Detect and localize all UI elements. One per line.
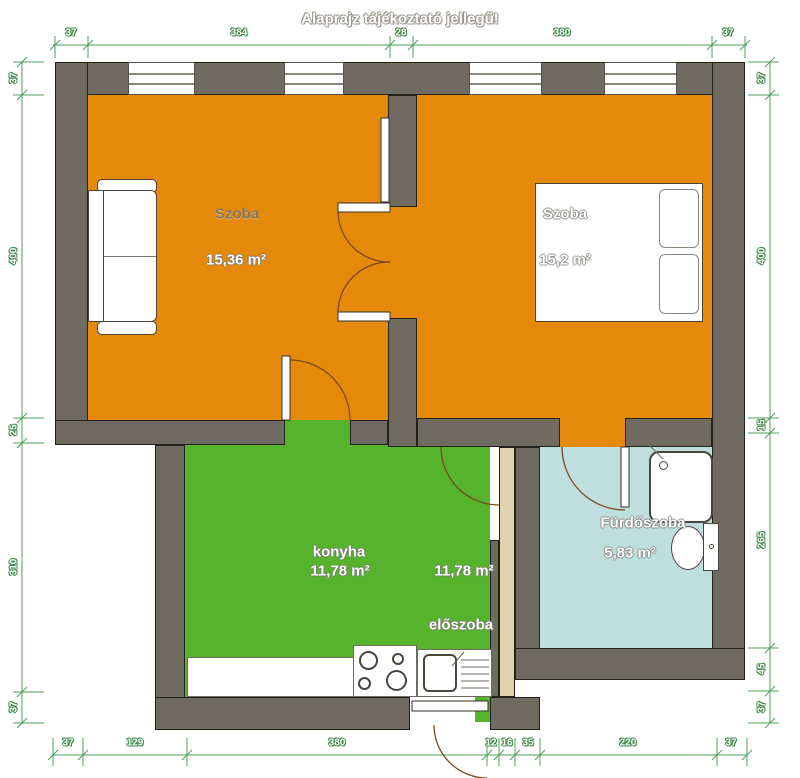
dim-left-0: 37 [9, 72, 20, 83]
floorplan-canvas: Alaprajz tájékoztató jellegű! [0, 0, 800, 778]
dim-bottom-1: 129 [127, 738, 144, 749]
dim-left-3: 310 [9, 559, 20, 576]
dim-bottom-6: 220 [620, 738, 637, 749]
bed-pillow-1 [659, 189, 699, 248]
szoba1-area: 15,36 m² [206, 252, 266, 269]
wall-under-szoba1-right [350, 420, 388, 445]
dim-right-0: 37 [757, 72, 768, 83]
stove-burner-4 [386, 670, 407, 691]
dim-right-2: 15 [757, 419, 768, 430]
wall-kitchen-left [155, 445, 185, 730]
window-4 [604, 62, 677, 95]
sink-basin [423, 654, 457, 692]
szoba-konyha-door-opening [285, 420, 350, 445]
wall-middle-upper [388, 95, 417, 207]
stove-burner-1 [359, 651, 378, 670]
eloszoba-name: előszoba [429, 617, 493, 634]
shower-cabin [649, 451, 713, 523]
szoba1-name: Szoba [215, 206, 259, 223]
kitchen-counter [187, 657, 354, 697]
dim-top-0: 37 [65, 28, 76, 39]
furdoszoba-name: Fürdőszoba [601, 515, 686, 532]
dim-bottom-7: 37 [725, 738, 736, 749]
eloszoba-area: 11,78 m² [434, 563, 493, 580]
dim-top-4: 37 [722, 28, 733, 39]
wall-left [55, 62, 88, 445]
dim-top-1: 384 [231, 28, 248, 39]
dim-left-1: 400 [9, 248, 20, 265]
dim-right-4: 45 [757, 663, 768, 674]
stove-burner-3 [358, 677, 371, 690]
toilet-flush-button [709, 544, 714, 549]
wall-under-szoba2-left [417, 418, 560, 447]
wall-bathroom-left [515, 447, 540, 680]
window-2 [284, 62, 344, 95]
dim-right-5: 37 [757, 701, 768, 712]
sofa-armrest-bottom [97, 321, 157, 335]
dim-bottom-4: 16 [501, 738, 512, 749]
dim-right-1: 400 [757, 248, 768, 265]
dim-bottom-2: 380 [329, 738, 346, 749]
wall-bottom-center [490, 697, 540, 730]
sofa-backrest [88, 190, 104, 322]
bed-pillow-2 [659, 254, 699, 314]
dim-right-3: 265 [757, 532, 768, 549]
dim-top-2: 28 [395, 28, 406, 39]
konyha-name: konyha [313, 544, 366, 561]
window-3 [469, 62, 542, 95]
dim-left-4: 37 [9, 701, 20, 712]
shower-drain [659, 461, 668, 470]
dim-bottom-0: 37 [62, 738, 73, 749]
entry-passage-floor [475, 697, 490, 722]
plan-title: Alaprajz tájékoztató jellegű! [301, 11, 499, 28]
wall-middle-lower [388, 318, 417, 447]
wall-under-szoba1-left [55, 420, 285, 445]
dim-top-3: 380 [554, 28, 571, 39]
window-1 [128, 62, 195, 95]
sofa-cushion-divider [104, 256, 156, 257]
dim-bottom-3: 12 [485, 738, 496, 749]
konyha-area: 11,78 m² [310, 563, 369, 580]
dim-bottom-5: 35 [522, 738, 533, 749]
dim-left-2: 25 [9, 424, 20, 435]
wall-right [712, 62, 745, 680]
double-door-opening [388, 207, 417, 318]
wall-under-szoba2-right [625, 418, 712, 447]
eloszoba-door-panel [499, 447, 515, 697]
wall-bathroom-bottom [515, 648, 745, 680]
szoba2-area: 15,2 m² [539, 252, 591, 269]
toilet-bowl [671, 526, 705, 570]
furdoszoba-area: 5,83 m² [604, 545, 656, 562]
wall-bottom [155, 697, 410, 730]
bathroom-door-opening [560, 418, 625, 447]
szoba2-name: Szoba [543, 206, 587, 223]
stove-burner-2 [392, 653, 404, 665]
sofa-seat [103, 190, 157, 322]
